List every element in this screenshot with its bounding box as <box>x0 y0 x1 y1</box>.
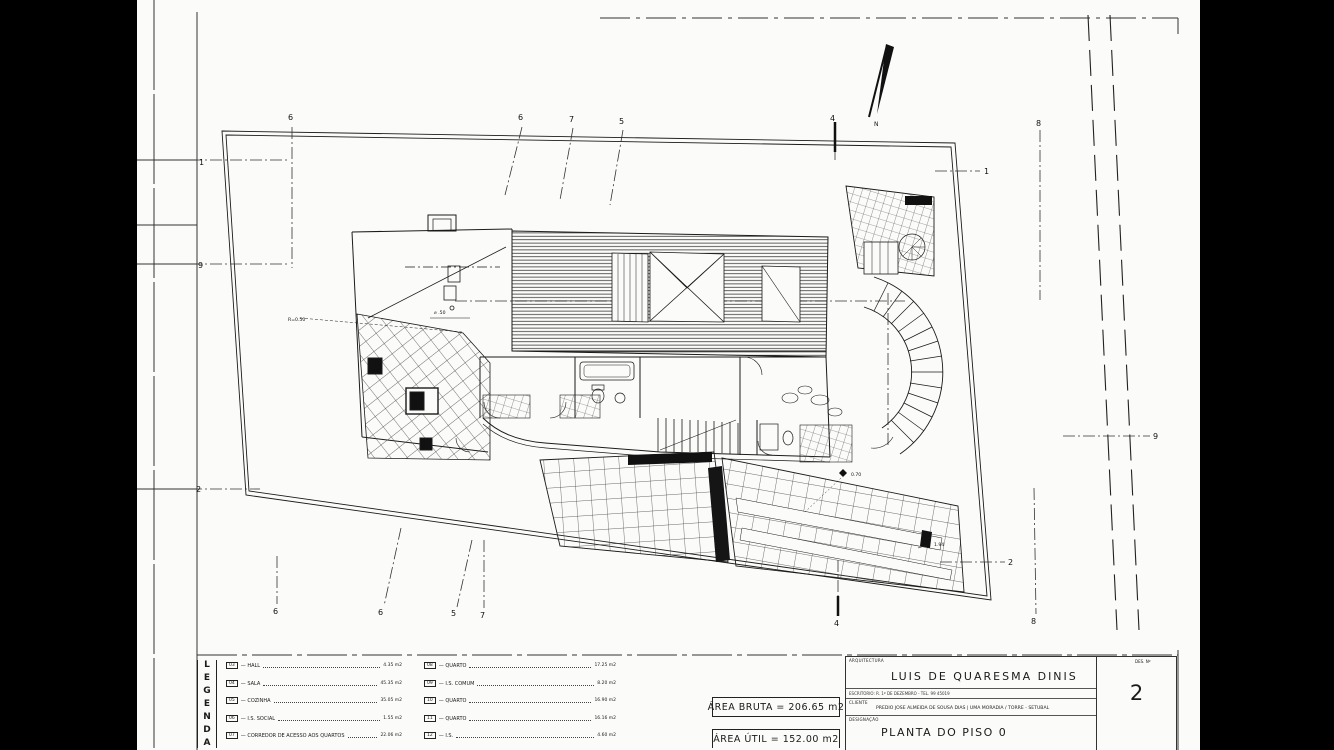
floor-plan-svg: N <box>0 0 1334 750</box>
scanned-floor-plan-sheet: N <box>0 0 1334 750</box>
courtyard-tiles <box>357 314 490 460</box>
sheet-frame <box>137 0 1178 750</box>
drawing-title: PLANTA DO PISO 0 <box>881 726 1007 739</box>
svg-text:2: 2 <box>1008 558 1013 567</box>
client-line: PREDIO JOSE ALMEIDA DE SOUSA DIAS | UMA … <box>876 706 1049 711</box>
legend-item-area: 4.35 m2 <box>383 663 402 669</box>
svg-text:1: 1 <box>984 167 989 176</box>
legend-item-area: 16.90 m2 <box>594 698 616 704</box>
designation-label: DESIGNAÇÃO <box>849 717 879 722</box>
legend-item-area: 45.35 m2 <box>380 681 402 687</box>
sink <box>615 393 625 403</box>
terrace-tiles <box>540 452 964 592</box>
legend-leader <box>274 702 378 703</box>
legend-item-label: QUARTO <box>439 663 467 669</box>
legend-item-label: I.S. SOCIAL <box>241 716 275 722</box>
title-block: ARQUITECTURA LUIS DE QUARESMA DINIS ESCR… <box>845 656 1177 750</box>
svg-text:1: 1 <box>199 158 204 167</box>
curved-wall <box>864 277 943 454</box>
svg-text:R=0.50: R=0.50 <box>288 317 305 323</box>
legend-item-area: 17.25 m2 <box>594 663 616 669</box>
legend-item-area: 8.20 m2 <box>597 681 616 687</box>
roof-deck <box>512 231 828 357</box>
svg-text:8: 8 <box>1031 617 1036 626</box>
svg-text:6: 6 <box>378 608 383 617</box>
legend-item: 10 QUARTO 16.90 m2 <box>424 697 616 704</box>
house <box>300 186 964 592</box>
svg-text:7: 7 <box>480 611 485 620</box>
upper-right-patio <box>846 186 934 276</box>
legend-leader <box>348 737 378 738</box>
area-util-box: ÁREA ÚTIL = 152.00 m2 <box>712 729 840 748</box>
legend-item: 07 CORREDOR DE ACESSO AOS QUARTOS 22.06 … <box>226 732 402 739</box>
legend-item-number: 11 <box>424 715 436 722</box>
legend-item-label: I.S. <box>439 733 453 739</box>
legend-item-number: 10 <box>424 697 436 704</box>
legend-item-label: CORREDOR DE ACESSO AOS QUARTOS <box>241 733 345 739</box>
legend-item-number: 06 <box>226 715 238 722</box>
legend-item-number: 08 <box>424 662 436 669</box>
legend-item-number: 09 <box>424 680 436 687</box>
legend-item-label: I.S. COMUM <box>439 681 475 687</box>
svg-text:5: 5 <box>619 117 624 126</box>
legend-item-number: 07 <box>226 732 238 739</box>
svg-text:9: 9 <box>1153 432 1158 441</box>
legend-item-area: 22.06 m2 <box>380 733 402 739</box>
svg-text:4: 4 <box>830 114 835 123</box>
legend-item-number: 12 <box>424 732 436 739</box>
legend-title-vertical: L E G E N D A <box>197 660 217 748</box>
legend-item-label: COZINHA <box>241 698 271 704</box>
main-floor <box>480 351 852 462</box>
office-line: ESCRITORIO: R. 1º DE DEZEMBRO - TEL. 99 … <box>849 691 950 696</box>
legend-item-area: 35.05 m2 <box>380 698 402 704</box>
legend-item-label: QUARTO <box>439 716 467 722</box>
sheet-number-label: DES. Nº <box>1135 659 1151 664</box>
svg-text:9: 9 <box>198 261 203 270</box>
title-block-sheet-number: DES. Nº 2 <box>1096 657 1176 750</box>
legend-item-number: 05 <box>226 697 238 704</box>
svg-text:N: N <box>874 121 879 128</box>
legend-item-label: HALL <box>241 663 260 669</box>
svg-text:1.94: 1.94 <box>934 542 944 548</box>
legend-item: 12 I.S. 4.60 m2 <box>424 732 616 739</box>
titleblock-section-label: ARQUITECTURA <box>849 658 884 663</box>
garden-plants <box>782 386 842 416</box>
legend-item: 11 QUARTO 16.16 m2 <box>424 715 616 722</box>
road-lines <box>1088 15 1139 630</box>
legend-leader <box>469 702 591 703</box>
legend-column-left: 03 HALL 4.35 m2 04 SALA 45.35 m2 05 COZI… <box>226 662 402 739</box>
svg-text:0.70: 0.70 <box>851 472 861 478</box>
legend-item-label: SALA <box>241 681 261 687</box>
bathtub <box>580 362 634 380</box>
stairs <box>658 418 738 454</box>
legend-item-area: 1.55 m2 <box>383 716 402 722</box>
legend-leader <box>263 685 377 686</box>
legend-item-number: 03 <box>226 662 238 669</box>
sheet-number: 2 <box>1097 681 1176 705</box>
legend-item: 08 QUARTO 17.25 m2 <box>424 662 616 669</box>
svg-text:5: 5 <box>451 609 456 618</box>
svg-text:7: 7 <box>569 115 574 124</box>
svg-text:6: 6 <box>518 113 523 122</box>
legend-leader <box>469 720 591 721</box>
area-bruta-box: ÁREA BRUTA = 206.65 m2 <box>712 697 840 717</box>
legend-item: 05 COZINHA 35.05 m2 <box>226 697 402 704</box>
client-label: CLIENTE <box>849 700 868 705</box>
title-block-main: ARQUITECTURA LUIS DE QUARESMA DINIS ESCR… <box>846 657 1096 750</box>
north-arrow-icon: N <box>869 44 894 128</box>
legend-leader <box>278 720 380 721</box>
svg-text:6: 6 <box>273 607 278 616</box>
legend-item-area: 16.16 m2 <box>594 716 616 722</box>
legend-item: 06 I.S. SOCIAL 1.55 m2 <box>226 715 402 722</box>
legend-item: 03 HALL 4.35 m2 <box>226 662 402 669</box>
legend-item-area: 4.60 m2 <box>597 733 616 739</box>
legend-leader <box>477 685 594 686</box>
legend-leader <box>263 667 380 668</box>
svg-text:8: 8 <box>1036 119 1041 128</box>
legend-leader <box>469 667 591 668</box>
legend-item: 04 SALA 45.35 m2 <box>226 680 402 687</box>
legend-item: 09 I.S. COMUM 8.20 m2 <box>424 680 616 687</box>
architect-name: LUIS DE QUARESMA DINIS <box>891 670 1078 683</box>
svg-text:2: 2 <box>196 485 201 494</box>
svg-text:6: 6 <box>288 113 293 122</box>
legend-item-number: 04 <box>226 680 238 687</box>
svg-text:⌀ .50: ⌀ .50 <box>434 310 446 316</box>
legend-column-right: 08 QUARTO 17.25 m2 09 I.S. COMUM 8.20 m2… <box>424 662 616 739</box>
legend-leader <box>456 737 594 738</box>
svg-text:4: 4 <box>834 619 839 628</box>
legend-item-label: QUARTO <box>439 698 467 704</box>
